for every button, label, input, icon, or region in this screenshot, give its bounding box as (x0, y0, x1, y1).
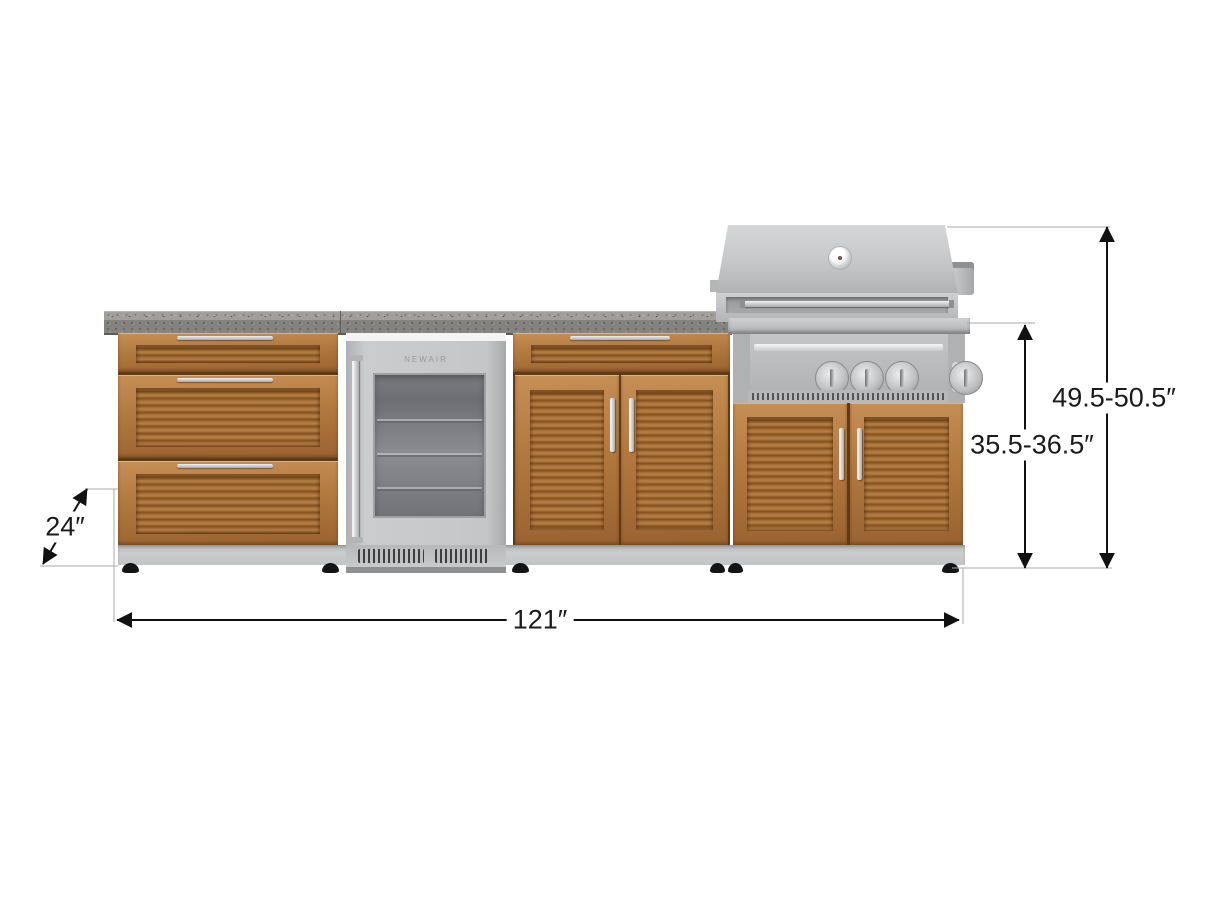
cabinet-foot (710, 563, 725, 573)
fridge-glass (373, 373, 486, 518)
grill-top-strip (728, 318, 970, 334)
door-handle (610, 398, 615, 452)
counter-height-dimension-label: 35.5-36.5″ (964, 430, 1100, 461)
door-panel (747, 417, 833, 531)
fridge-brand-logo: NEWAIR (376, 355, 476, 364)
fridge-top-gap (346, 333, 506, 341)
cabinet-foot (322, 563, 339, 573)
door-handle (839, 428, 844, 480)
cabinet-foot (942, 563, 959, 573)
burner-knob (949, 361, 983, 395)
drawer (118, 333, 338, 372)
drawer-panel (136, 388, 320, 447)
fridge-vent-grille (358, 549, 424, 563)
grill-control-panel (750, 334, 948, 390)
drawer-handle (177, 378, 273, 382)
door-panel (864, 417, 949, 531)
drawer (513, 333, 730, 372)
drawer-handle (177, 464, 273, 468)
vent-louvers (752, 393, 944, 400)
fridge-base-shadow (346, 567, 506, 573)
overall-height-dimension-label: 49.5-50.5″ (1046, 383, 1182, 414)
drawer-panel (136, 474, 320, 534)
beverage-fridge: NEWAIR (346, 333, 506, 573)
hood-handle (743, 301, 950, 307)
fridge-handle-mount (350, 537, 363, 543)
hood-handle-cap (949, 300, 954, 308)
drawer-panel (531, 345, 712, 363)
gas-grill (700, 220, 990, 410)
three-drawer-cabinet (118, 333, 338, 545)
thermometer (828, 246, 852, 270)
cabinet-foot (122, 563, 139, 573)
knob-pointer (830, 369, 834, 387)
drawer-handle (177, 336, 273, 340)
countertop-seam (340, 311, 341, 333)
depth-dimension-label: 24″ (39, 512, 91, 543)
door-handle (857, 428, 862, 480)
hood-handle-cap (740, 300, 745, 308)
fridge-shelves (377, 391, 482, 512)
width-dimension-label: 121″ (507, 605, 574, 636)
panel-trim (754, 344, 943, 351)
cabinet-door (850, 403, 963, 545)
fridge-handle (352, 357, 359, 541)
knob-pointer (865, 369, 869, 387)
drawer-handle (570, 336, 670, 340)
cabinet-door (515, 375, 619, 545)
thermometer-needle (838, 256, 842, 260)
drawer-panel (136, 345, 320, 363)
drawer (118, 461, 338, 545)
door-panel (530, 390, 604, 530)
door-handle (629, 398, 634, 452)
cabinet-plinth (118, 545, 965, 565)
knob-pointer (964, 369, 968, 387)
product-diagram: NEWAIR (0, 0, 1214, 911)
cabinet-foot (728, 563, 743, 573)
grill-cabinet (733, 403, 963, 545)
cabinet-door (733, 403, 847, 545)
fridge-door: NEWAIR (346, 341, 506, 545)
grill-vent-strip (748, 390, 948, 403)
fridge-vent-grille (435, 549, 488, 563)
bar-cabinet (513, 333, 730, 545)
door-panel (636, 390, 713, 530)
drawer (118, 375, 338, 458)
fridge-handle-mount (350, 355, 363, 361)
cabinet-foot (512, 563, 529, 573)
knob-pointer (900, 369, 904, 387)
